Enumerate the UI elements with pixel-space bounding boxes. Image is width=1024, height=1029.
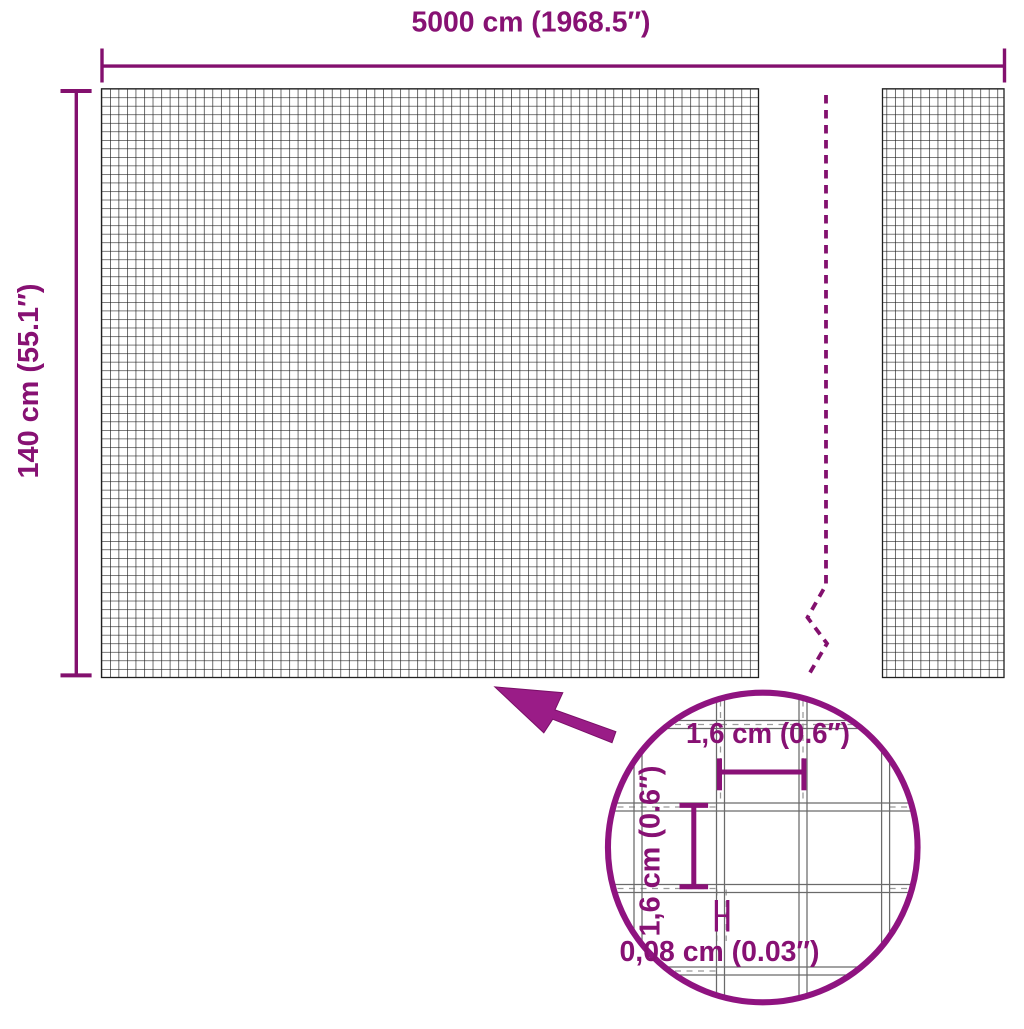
svg-text:1,6 cm (0.6″): 1,6 cm (0.6″) <box>686 718 850 750</box>
svg-text:0,08 cm (0.03″): 0,08 cm (0.03″) <box>620 936 820 968</box>
svg-text:140 cm (55.1″): 140 cm (55.1″) <box>13 284 45 479</box>
svg-text:5000 cm (1968.5″): 5000 cm (1968.5″) <box>412 7 651 39</box>
svg-text:1,6 cm (0.6″): 1,6 cm (0.6″) <box>635 766 667 937</box>
